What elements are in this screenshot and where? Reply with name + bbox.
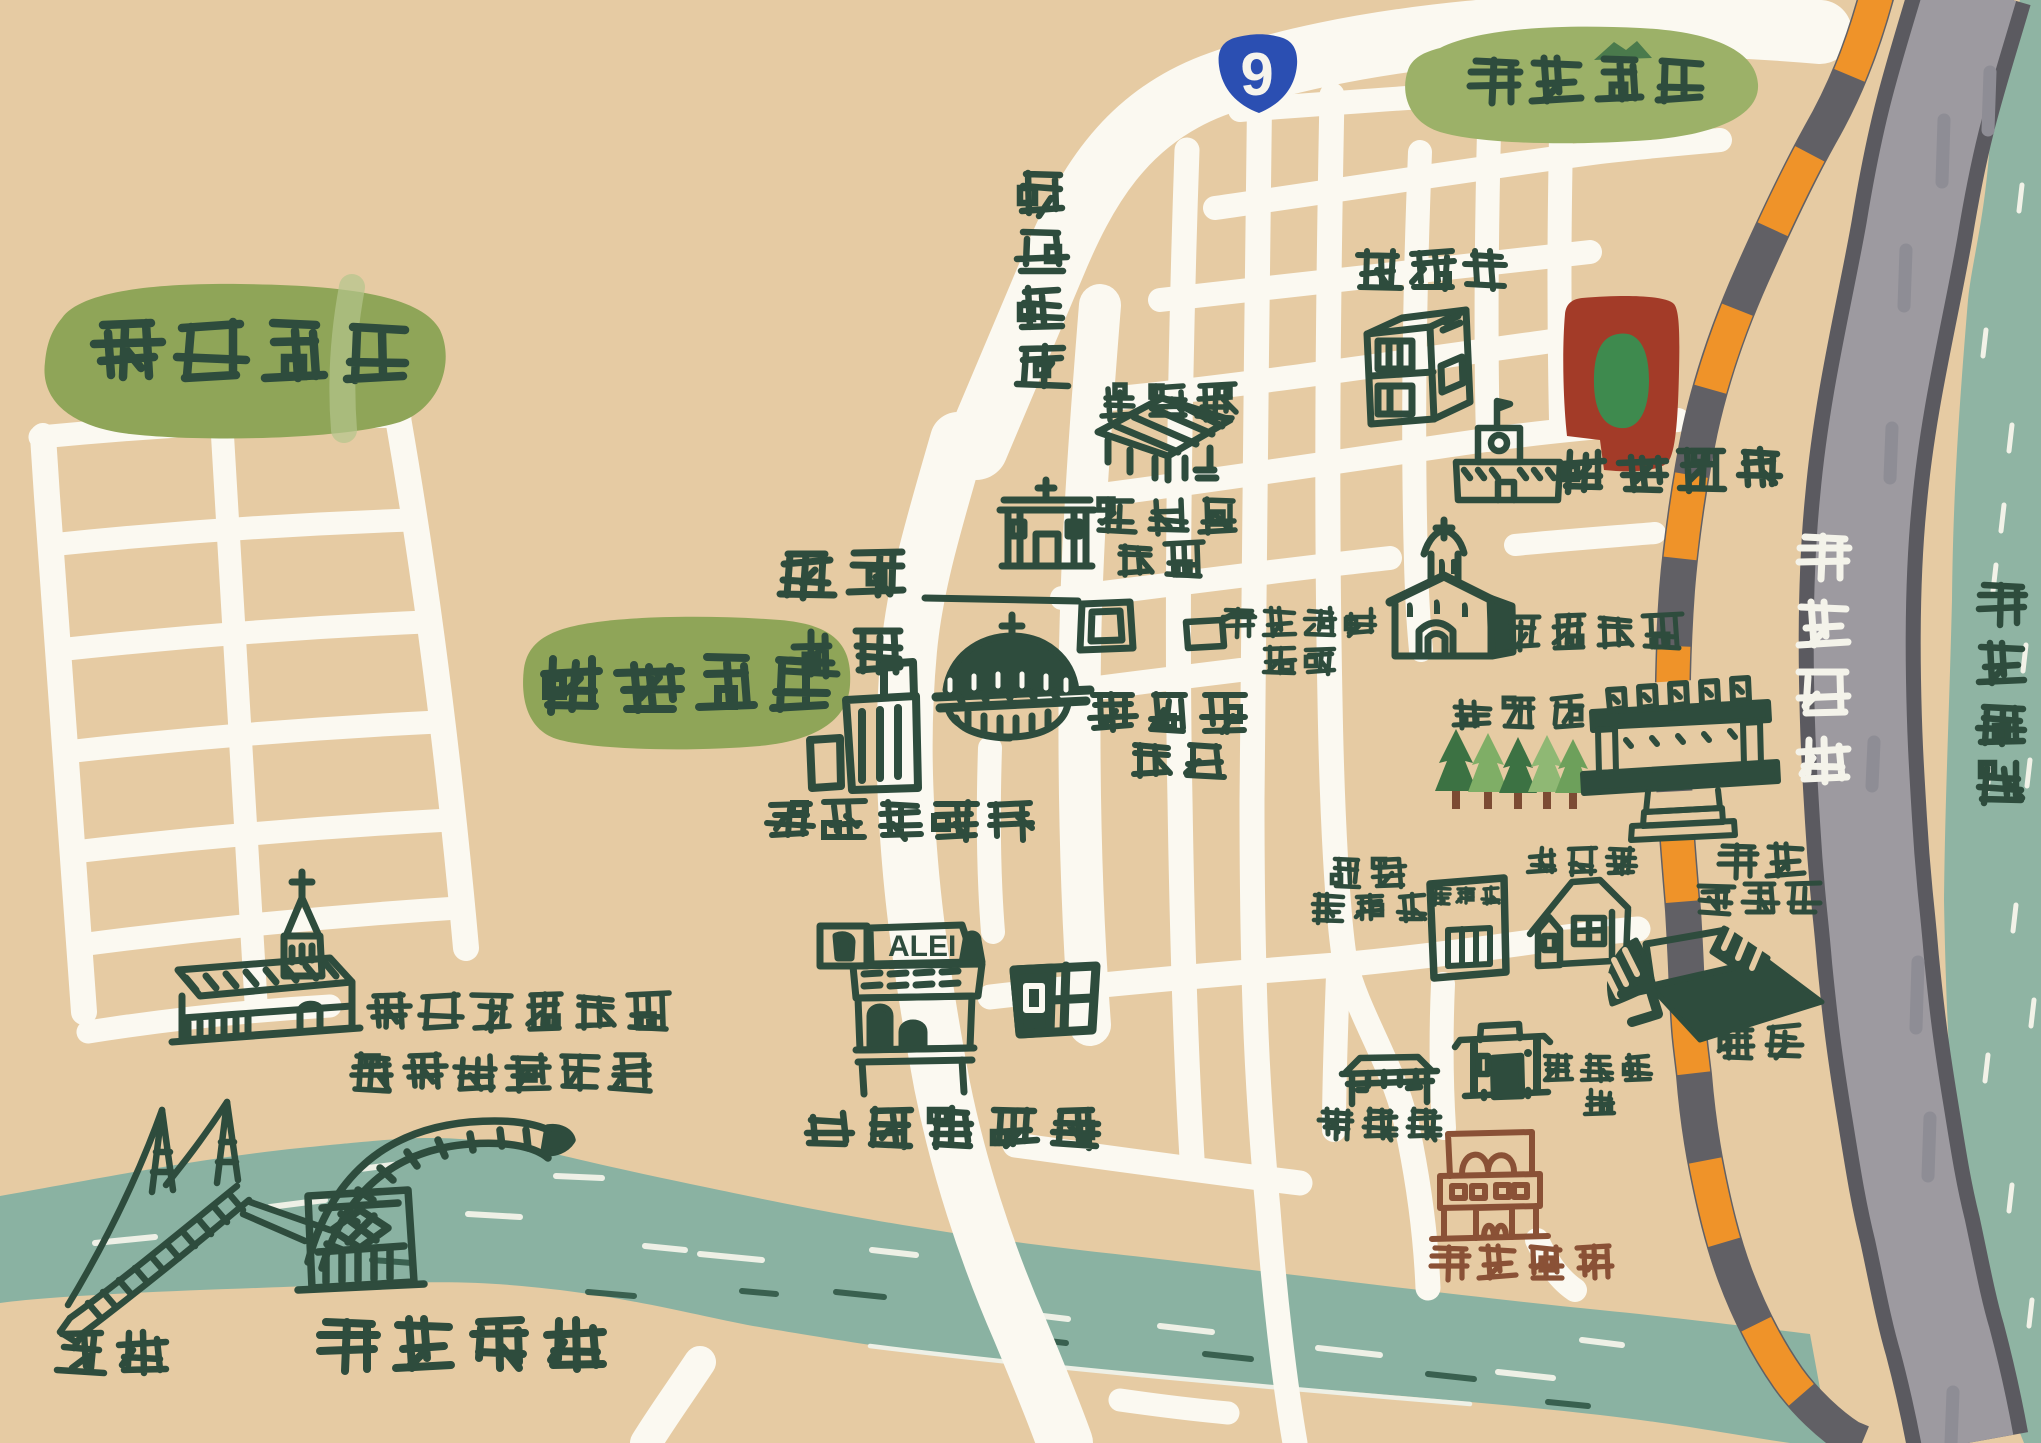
svg-text:ALEI: ALEI: [888, 930, 956, 963]
svg-text:9: 9: [1240, 41, 1273, 108]
